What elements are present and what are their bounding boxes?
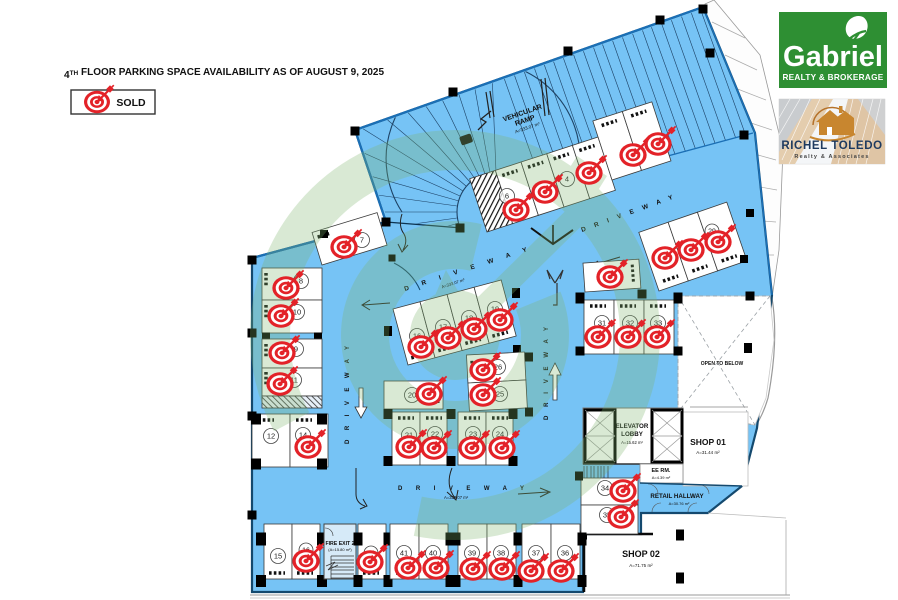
svg-text:38: 38 — [497, 549, 505, 558]
svg-text:SOLD: SOLD — [116, 97, 146, 109]
svg-text:Gabriel: Gabriel — [783, 41, 883, 73]
svg-text:OPEN TO BELOW: OPEN TO BELOW — [701, 361, 744, 367]
svg-text:SHOP 02: SHOP 02 — [622, 549, 660, 559]
svg-text:A=30.76 m²: A=30.76 m² — [669, 501, 690, 506]
svg-text:A=71.75 m²: A=71.75 m² — [629, 563, 653, 568]
svg-text:A=31.44 m²: A=31.44 m² — [696, 450, 720, 455]
svg-text:REALTY & BROKERAGE: REALTY & BROKERAGE — [782, 73, 883, 82]
svg-text:39: 39 — [468, 549, 476, 558]
svg-text:6: 6 — [505, 192, 509, 201]
svg-text:RICHEL TOLEDO: RICHEL TOLEDO — [781, 140, 882, 152]
svg-text:36: 36 — [561, 549, 569, 558]
svg-text:12: 12 — [267, 432, 275, 441]
svg-text:A=4.39 m²: A=4.39 m² — [652, 475, 671, 480]
svg-text:RETAIL HALLWAY: RETAIL HALLWAY — [650, 493, 704, 500]
svg-text:4TH FLOOR PARKING SPACE AVAILA: 4TH FLOOR PARKING SPACE AVAILABILITY AS … — [64, 67, 384, 81]
svg-text:7: 7 — [360, 236, 364, 245]
svg-text:34: 34 — [601, 484, 609, 493]
svg-text:Realty & Associates: Realty & Associates — [794, 154, 869, 160]
svg-text:EE RM.: EE RM. — [652, 468, 671, 474]
svg-text:SHOP 01: SHOP 01 — [690, 437, 726, 447]
svg-text:15: 15 — [274, 552, 282, 561]
svg-text:(A=15.80 m²): (A=15.80 m²) — [328, 547, 352, 552]
svg-text:37: 37 — [532, 549, 540, 558]
